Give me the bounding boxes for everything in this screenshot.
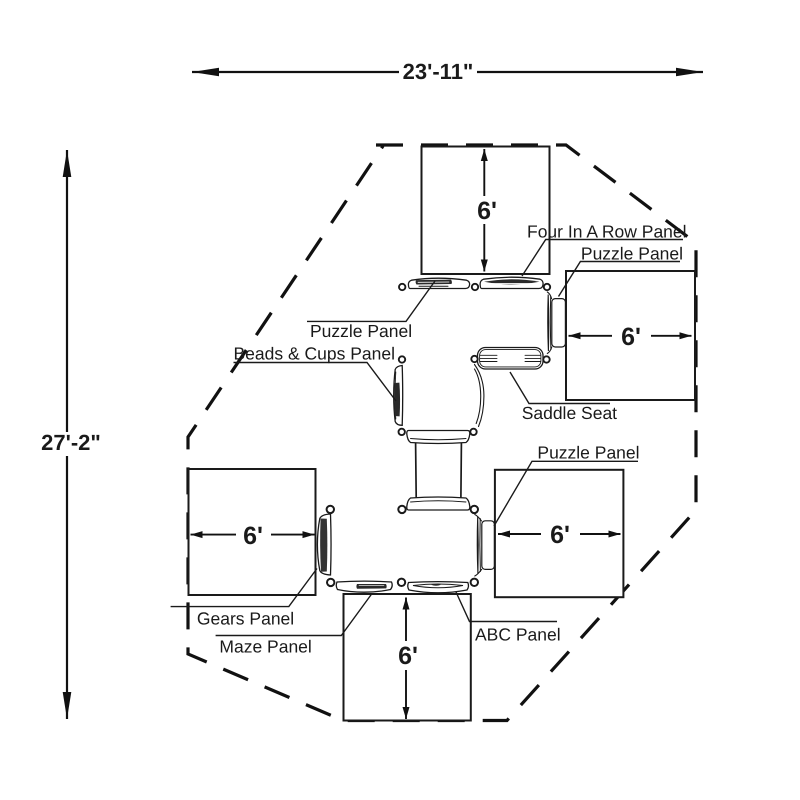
svg-text:Puzzle Panel: Puzzle Panel — [581, 244, 683, 264]
svg-text:6': 6' — [621, 323, 641, 351]
svg-text:27'-2": 27'-2" — [41, 430, 101, 455]
svg-text:Puzzle Panel: Puzzle Panel — [537, 443, 639, 463]
svg-text:6': 6' — [398, 642, 418, 670]
svg-text:ABC Panel: ABC Panel — [475, 625, 561, 645]
svg-text:23'-11": 23'-11" — [403, 59, 474, 84]
svg-text:Four In A Row Panel: Four In A Row Panel — [527, 222, 687, 242]
svg-text:Beads & Cups Panel: Beads & Cups Panel — [234, 344, 396, 364]
svg-text:6': 6' — [243, 522, 263, 550]
svg-text:6': 6' — [550, 521, 570, 549]
svg-text:Saddle Seat: Saddle Seat — [522, 403, 617, 423]
svg-text:6': 6' — [477, 197, 497, 225]
svg-text:Maze Panel: Maze Panel — [219, 637, 311, 657]
svg-text:Puzzle Panel: Puzzle Panel — [310, 321, 412, 341]
svg-text:Gears Panel: Gears Panel — [197, 609, 294, 629]
